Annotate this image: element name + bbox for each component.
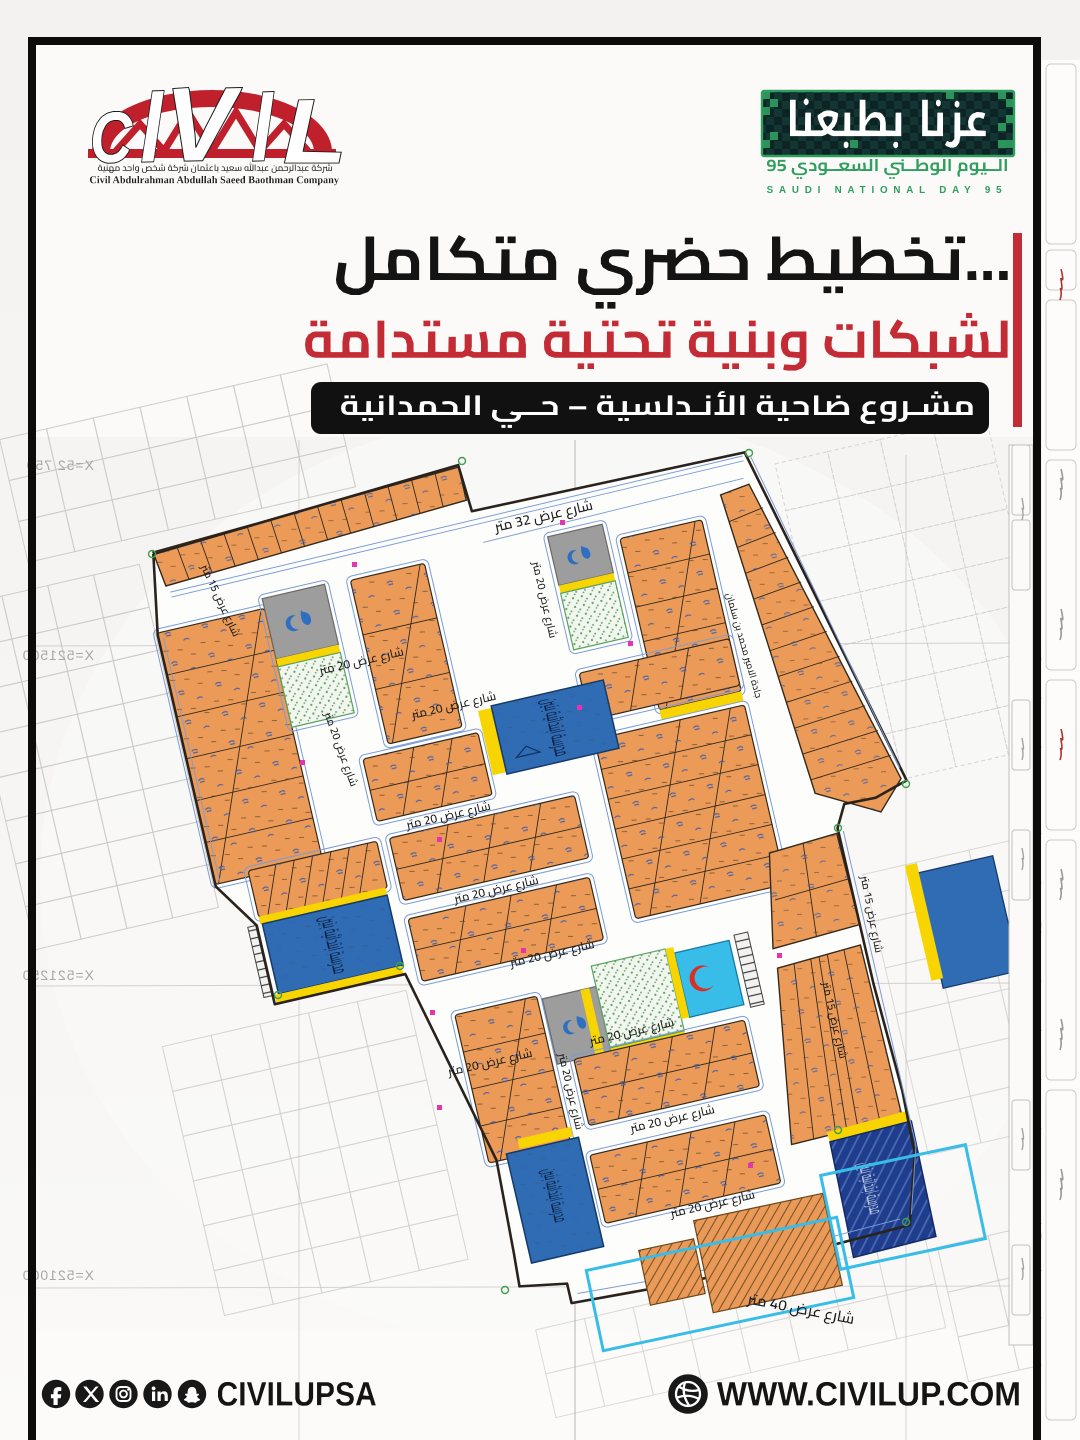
svg-text:SAUDI NATIONAL DAY 95: SAUDI NATIONAL DAY 95 <box>767 185 1008 196</box>
